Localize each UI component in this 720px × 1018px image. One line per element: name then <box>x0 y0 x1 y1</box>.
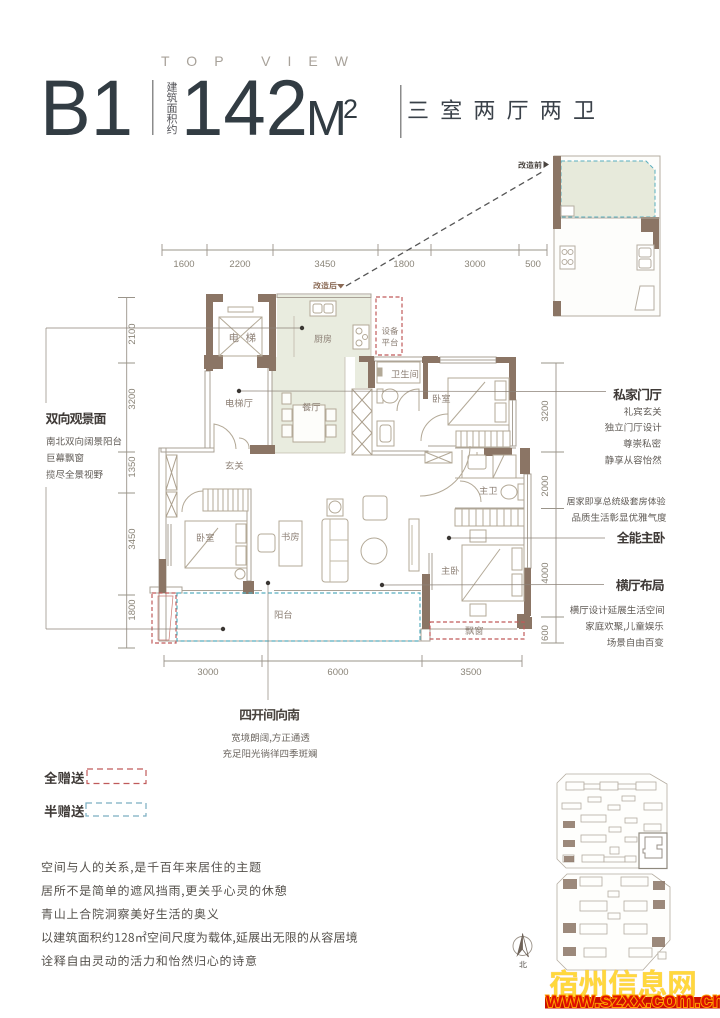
svg-text:142: 142 <box>181 63 308 152</box>
svg-text:2000: 2000 <box>540 475 551 496</box>
svg-text:3000: 3000 <box>197 667 218 678</box>
svg-text:2: 2 <box>343 94 358 124</box>
svg-text:2100: 2100 <box>127 323 138 344</box>
svg-text:3500: 3500 <box>460 667 481 678</box>
svg-text:3450: 3450 <box>127 528 138 549</box>
svg-text:600: 600 <box>540 625 551 641</box>
svg-text:3000: 3000 <box>464 259 485 270</box>
svg-text:2200: 2200 <box>229 259 250 270</box>
svg-text:3200: 3200 <box>540 400 551 421</box>
svg-text:1800: 1800 <box>393 259 414 270</box>
svg-text:www.szxx.com.cn: www.szxx.com.cn <box>545 989 720 1012</box>
svg-text:M: M <box>306 92 347 146</box>
svg-text:4000: 4000 <box>540 562 551 583</box>
svg-text:500: 500 <box>525 259 541 270</box>
svg-text:3200: 3200 <box>127 388 138 409</box>
svg-text:1800: 1800 <box>127 599 138 620</box>
svg-text:3450: 3450 <box>314 259 335 270</box>
svg-text:1350: 1350 <box>127 456 138 477</box>
svg-text:6000: 6000 <box>327 667 348 678</box>
svg-text:B1: B1 <box>40 63 133 152</box>
svg-text:1600: 1600 <box>173 259 194 270</box>
